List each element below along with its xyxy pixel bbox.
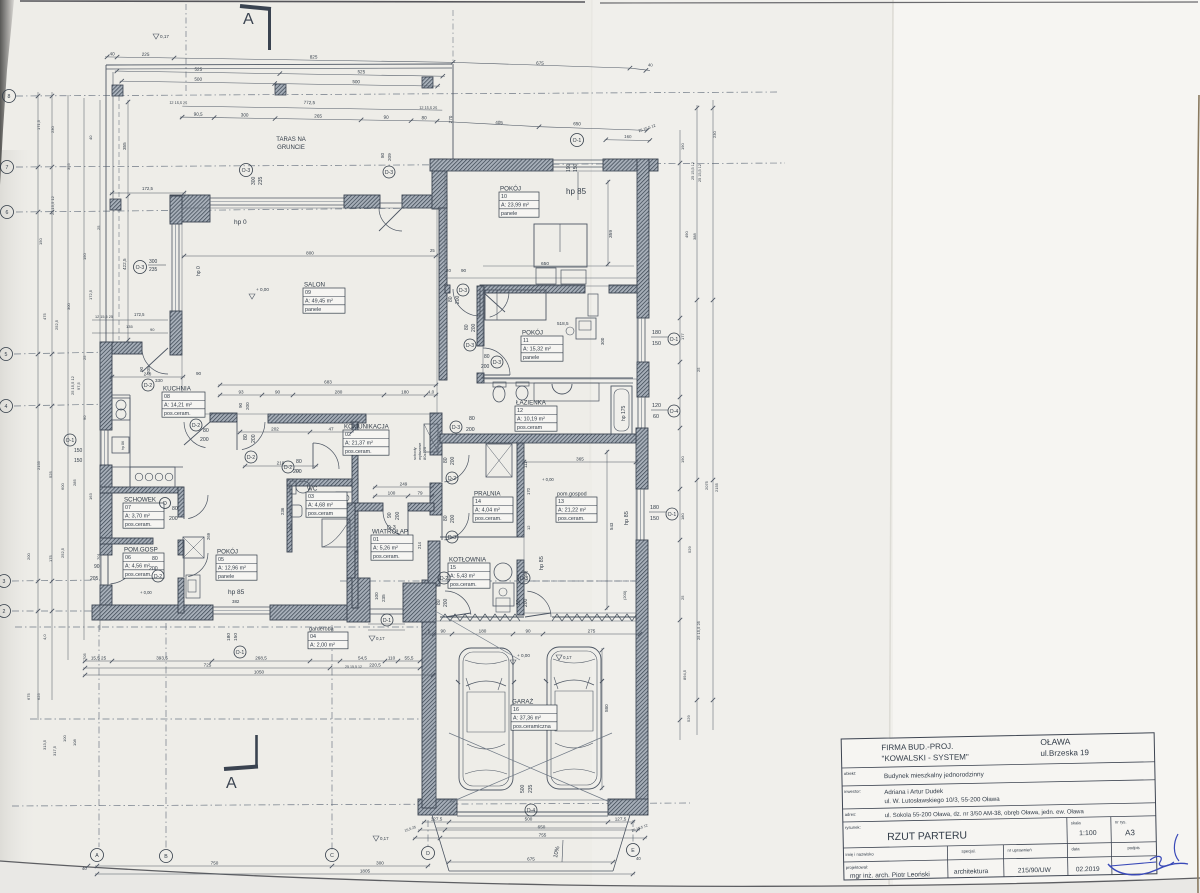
svg-text:E: E [631,848,635,854]
svg-text:podpis: podpis [1127,845,1139,850]
svg-text:190: 190 [680,143,685,150]
svg-text:KOTŁOWNIA: KOTŁOWNIA [449,557,487,564]
svg-text:800: 800 [306,250,314,255]
svg-text:220,5: 220,5 [369,662,381,667]
svg-text:pos.ceram.: pos.ceram. [450,582,477,588]
svg-text:150: 150 [74,448,83,454]
svg-text:60: 60 [653,414,659,420]
svg-text:1:100: 1:100 [1079,830,1097,837]
svg-text:135: 135 [126,324,133,329]
svg-text:265: 265 [314,114,322,119]
svg-text:200: 200 [26,553,31,560]
svg-text:A: 14,21 m²: A: 14,21 m² [164,403,192,409]
svg-text:pos.ceram.: pos.ceram. [125,572,152,578]
svg-text:A: 2,00 m²: A: 2,00 m² [310,643,335,649]
svg-text:hp 85: hp 85 [624,511,630,525]
svg-text:40: 40 [648,62,653,67]
svg-text:90: 90 [196,371,202,376]
svg-text:205: 205 [90,576,99,582]
svg-text:A: 4,04 m²: A: 4,04 m² [475,508,500,514]
svg-text:249: 249 [400,481,408,486]
svg-text:160: 160 [624,134,632,139]
svg-text:SALON: SALON [304,282,325,289]
svg-text:2: 2 [3,609,6,615]
svg-text:D-2: D-2 [192,423,200,429]
svg-text:90: 90 [150,327,155,332]
svg-text:80: 80 [436,599,442,605]
svg-text:+ 0,00: + 0,00 [140,590,152,595]
svg-text:1050: 1050 [254,669,265,674]
svg-text:580: 580 [604,704,609,712]
svg-text:200: 200 [466,427,475,433]
svg-text:200: 200 [450,456,456,465]
svg-text:12: 12 [526,525,531,530]
svg-text:209: 209 [387,153,392,161]
svg-text:200: 200 [169,516,178,522]
svg-text:2075: 2075 [704,480,709,490]
svg-text:hp 86: hp 86 [121,441,125,450]
svg-text:200: 200 [200,437,209,443]
svg-text:393,5: 393,5 [156,655,168,660]
svg-text:imię i nazwisko: imię i nazwisko [845,851,874,857]
svg-text:190: 190 [566,163,572,172]
svg-text:529: 529 [687,546,692,553]
svg-text:750: 750 [211,860,219,865]
svg-text:90: 90 [461,268,467,273]
svg-text:skala: skala [1071,820,1082,825]
svg-text:(238): (238) [523,570,528,580]
svg-text:0,17: 0,17 [563,655,572,660]
svg-text:150: 150 [573,163,579,172]
svg-text:12 15,5 25: 12 15,5 25 [95,315,113,319]
svg-text:300: 300 [149,259,158,265]
svg-text:D-4: D-4 [527,808,535,814]
svg-text:200: 200 [481,364,490,370]
svg-text:100: 100 [388,490,396,495]
svg-text:54,5: 54,5 [358,655,367,660]
svg-text:525: 525 [194,67,202,72]
svg-text:pos.ceramiczna: pos.ceramiczna [513,724,551,730]
svg-text:A3: A3 [1125,828,1136,837]
svg-text:hp 85: hp 85 [228,589,245,596]
svg-text:POKÓJ: POKÓJ [500,186,521,193]
svg-text:80: 80 [296,459,302,465]
svg-text:725: 725 [204,662,212,667]
svg-text:7: 7 [6,165,9,171]
svg-text:D-3: D-3 [459,288,467,294]
svg-text:80: 80 [152,556,158,562]
svg-text:200: 200 [450,514,456,523]
svg-text:172,5: 172,5 [88,289,93,300]
svg-text:300: 300 [241,112,249,117]
svg-text:236: 236 [280,507,285,515]
svg-text:100: 100 [62,735,67,742]
svg-text:FIRMA BUD.-PROJ.: FIRMA BUD.-PROJ. [881,742,953,752]
svg-text:4: 4 [5,404,8,410]
svg-text:data: data [1071,846,1080,851]
svg-text:A: 49,45 m²: A: 49,45 m² [305,299,333,305]
svg-text:705: 705 [82,653,87,660]
svg-text:4,0: 4,0 [428,389,435,394]
svg-text:4,0: 4,0 [42,634,47,640]
svg-text:90: 90 [94,564,100,570]
svg-text:panele: panele [523,355,539,361]
svg-text:90: 90 [387,512,393,518]
svg-text:pom.gospod: pom.gospod [557,492,587,498]
svg-text:180: 180 [680,513,685,520]
svg-text:111: 111 [523,461,528,468]
svg-text:02: 02 [345,432,351,438]
svg-text:625: 625 [36,693,41,700]
svg-text:90: 90 [525,628,531,633]
svg-text:A: A [243,11,254,28]
svg-text:235: 235 [258,176,264,185]
svg-text:6: 6 [6,210,9,216]
svg-text:0,17: 0,17 [160,34,169,39]
svg-text:panele: panele [501,211,517,217]
svg-text:O-1: O-1 [668,512,677,518]
svg-text:500: 500 [194,77,202,82]
svg-text:80x120: 80x120 [422,446,427,460]
svg-text:80: 80 [443,457,449,463]
svg-text:D: D [426,851,430,857]
svg-text:PRALNIA: PRALNIA [474,491,501,498]
svg-text:08: 08 [164,394,170,400]
svg-text:313,5: 313,5 [42,739,47,750]
svg-text:525: 525 [48,471,53,478]
svg-text:09: 09 [305,290,311,296]
svg-text:POM.GOSP: POM.GOSP [124,547,158,554]
svg-text:172,5: 172,5 [134,312,145,317]
svg-text:210: 210 [277,460,285,465]
svg-text:200: 200 [149,566,158,572]
svg-text:D-3: D-3 [452,425,460,431]
svg-text:235: 235 [528,784,534,793]
svg-text:15,5 25: 15,5 25 [91,655,107,660]
svg-text:200: 200 [251,434,257,443]
svg-text:O-3: O-3 [136,265,145,271]
svg-text:55,5: 55,5 [405,655,414,660]
svg-text:hp 85: hp 85 [539,556,545,570]
svg-text:355: 355 [122,142,127,150]
svg-text:25: 25 [430,248,435,253]
svg-text:215/90/UW: 215/90/UW [1018,867,1052,875]
svg-text:97,5: 97,5 [76,381,81,390]
svg-text:79: 79 [417,490,423,495]
svg-text:180: 180 [650,505,659,511]
svg-text:177: 177 [680,333,685,340]
svg-text:80: 80 [172,506,178,512]
svg-text:panele: panele [218,574,234,580]
svg-text:+ 0,00: + 0,00 [542,477,554,482]
svg-text:1805: 1805 [360,868,371,873]
svg-text:POKÓJ: POKÓJ [522,330,543,337]
svg-text:80: 80 [443,515,449,521]
svg-text:07: 07 [125,505,131,511]
svg-text:300: 300 [600,337,605,345]
svg-text:B: B [164,854,168,860]
svg-text:40: 40 [82,866,87,871]
svg-text:O-1: O-1 [573,138,582,144]
svg-text:108: 108 [72,739,77,746]
svg-text:25 15,5 12: 25 15,5 12 [698,164,702,182]
svg-text:12: 12 [517,408,523,414]
svg-text:90: 90 [440,628,446,633]
svg-text:pos.ceram.: pos.ceram. [164,411,191,417]
svg-text:KOMUNIKACJA: KOMUNIKACJA [344,424,390,431]
svg-text:pos.ceram: pos.ceram [308,511,334,517]
svg-text:100: 100 [374,592,379,600]
svg-text:275: 275 [588,628,596,633]
svg-text:252,5: 252,5 [54,319,59,330]
svg-text:180: 180 [401,389,409,394]
svg-text:500: 500 [520,784,526,793]
svg-text:pos.ceram.: pos.ceram. [475,516,502,522]
svg-text:269: 269 [206,532,211,540]
svg-text:14: 14 [475,499,481,505]
svg-text:O-4: O-4 [670,409,679,415]
svg-text:90: 90 [238,402,243,408]
svg-text:D-3: D-3 [385,170,393,176]
svg-text:06: 06 [125,555,131,561]
svg-text:D-1: D-1 [383,618,391,624]
svg-text:150: 150 [74,458,83,464]
svg-text:A: 37,36 m²: A: 37,36 m² [513,716,541,722]
svg-text:25: 25 [696,367,701,372]
svg-text:701: 701 [96,553,101,560]
svg-text:11: 11 [523,338,529,344]
svg-text:200: 200 [523,598,529,607]
svg-text:A: 21,22 m²: A: 21,22 m² [558,508,586,514]
svg-text:285: 285 [72,479,77,486]
svg-text:D-3: D-3 [466,343,474,349]
svg-text:150: 150 [38,238,43,245]
svg-text:nr rys.: nr rys. [1115,819,1127,824]
svg-text:40: 40 [109,51,115,56]
svg-text:01: 01 [373,537,379,543]
svg-text:214: 214 [417,541,422,549]
svg-text:20: 20 [446,268,451,273]
svg-text:WC: WC [307,486,318,493]
svg-text:525: 525 [357,69,365,74]
svg-text:O-3: O-3 [242,168,251,174]
svg-text:12: 12 [295,468,300,473]
svg-text:365: 365 [576,456,584,461]
svg-text:A: 21,37 m²: A: 21,37 m² [345,441,373,447]
svg-text:3: 3 [3,579,6,585]
svg-text:A: 4,56 m²: A: 4,56 m² [125,564,150,570]
svg-text:pos.ceram.: pos.ceram. [125,522,152,528]
svg-text:A: 15,32 m²: A: 15,32 m² [523,347,551,353]
svg-text:163: 163 [88,493,93,500]
svg-text:683: 683 [324,379,332,384]
svg-text:GRUNCIE: GRUNCIE [277,145,305,151]
svg-text:202: 202 [271,426,279,431]
svg-text:359: 359 [608,230,614,238]
svg-text:25 15,5 25: 25 15,5 25 [696,620,701,640]
svg-text:5: 5 [5,352,8,358]
svg-text:330: 330 [155,378,163,383]
svg-text:80: 80 [484,354,490,360]
svg-text:90,5: 90,5 [194,112,203,117]
svg-text:80: 80 [469,416,475,422]
svg-text:90: 90 [275,389,281,394]
svg-text:D-2: D-2 [448,476,456,482]
svg-text:A: 5,43 m²: A: 5,43 m² [450,574,475,580]
svg-text:nr uprawnień: nr uprawnień [1007,847,1032,852]
svg-text:252,5: 252,5 [60,547,65,558]
svg-text:175: 175 [48,555,53,562]
svg-text:5: 5 [428,628,431,633]
svg-text:300: 300 [66,303,71,310]
svg-text:171,5: 171,5 [36,119,41,130]
svg-text:230: 230 [712,131,717,138]
svg-text:172,5: 172,5 [142,186,154,191]
svg-text:panele: panele [305,307,321,313]
svg-text:755: 755 [539,832,547,837]
svg-text:adres:: adres: [845,812,857,817]
svg-text:180: 180 [479,628,487,633]
svg-text:80: 80 [464,324,470,330]
svg-text:150: 150 [650,516,659,522]
svg-text:O-1: O-1 [66,438,75,444]
svg-text:270: 270 [448,115,453,123]
svg-text:894,5: 894,5 [682,669,687,680]
svg-text:hp 175: hp 175 [621,405,627,421]
svg-text:hp 0: hp 0 [196,266,202,276]
svg-text:150: 150 [82,253,87,260]
svg-text:675: 675 [536,61,544,66]
svg-text:D-2: D-2 [247,455,255,461]
svg-text:D: D [163,501,167,507]
svg-text:8: 8 [8,94,11,100]
svg-text:405: 405 [495,120,503,125]
svg-text:225: 225 [142,52,150,57]
svg-text:80: 80 [448,296,454,302]
svg-text:projektował:: projektował: [846,865,868,870]
svg-text:80: 80 [243,434,249,440]
svg-text:16: 16 [513,707,519,713]
svg-text:A: 5,26 m²: A: 5,26 m² [373,546,398,552]
svg-text:Adriana i Artur Dudek: Adriana i Artur Dudek [884,788,944,796]
svg-text:675: 675 [26,693,31,700]
svg-text:03: 03 [308,494,314,500]
svg-text:C: C [330,853,334,859]
svg-text:pos.ceram.: pos.ceram. [558,516,585,522]
svg-text:A: 10,19 m²: A: 10,19 m² [517,417,545,423]
svg-text:200: 200 [455,295,461,304]
svg-text:200: 200 [443,598,449,607]
svg-text:12 15,5 25: 12 15,5 25 [169,101,187,105]
svg-text:05: 05 [218,557,224,563]
svg-text:529: 529 [686,715,691,722]
svg-text:POKÓJ: POKÓJ [217,549,238,556]
svg-text:235: 235 [381,594,386,602]
svg-text:170: 170 [526,487,531,495]
svg-text:490: 490 [684,231,689,238]
svg-text:04: 04 [310,634,316,640]
svg-text:A: 23,99 m²: A: 23,99 m² [501,203,529,209]
svg-text:93: 93 [238,389,244,394]
svg-text:475: 475 [42,313,47,320]
svg-text:25: 25 [82,355,87,360]
svg-text:80: 80 [203,428,209,434]
svg-text:90: 90 [384,115,390,120]
svg-text:rysunek:: rysunek: [845,825,861,830]
svg-text:SCHOWEK: SCHOWEK [124,497,157,504]
svg-text:382: 382 [232,599,240,604]
svg-text:110: 110 [388,655,396,660]
svg-text:500: 500 [352,79,360,84]
svg-text:D-2: D-2 [154,574,162,580]
svg-text:230: 230 [50,126,55,133]
svg-text:+ 0,00: + 0,00 [517,653,530,658]
svg-text:200: 200 [395,511,401,520]
svg-text:12 15,5 25: 12 15,5 25 [419,106,437,110]
svg-text:518,5: 518,5 [557,321,569,326]
svg-text:A: A [95,853,99,859]
svg-text:268,5: 268,5 [255,655,267,660]
svg-text:25: 25 [96,225,101,230]
svg-text:25 15,5 12: 25 15,5 12 [691,162,695,180]
svg-text:KUCHNIA: KUCHNIA [163,386,192,393]
svg-text:2155: 2155 [36,460,41,470]
svg-text:127,5: 127,5 [615,816,627,821]
svg-text:O-1: O-1 [236,650,245,656]
svg-text:317,5: 317,5 [52,745,57,756]
svg-text:180: 180 [226,633,232,641]
svg-text:120: 120 [652,403,661,409]
svg-text:300: 300 [376,860,384,865]
svg-text:280: 280 [335,389,343,394]
svg-text:pos.ceram.: pos.ceram. [373,554,400,560]
svg-text:500: 500 [525,816,533,821]
svg-text:pos.ceram.: pos.ceram. [345,449,372,455]
svg-text:15: 15 [450,565,456,571]
svg-text:300: 300 [251,176,257,185]
svg-text:architektura: architektura [954,868,989,876]
svg-text:TARAS NA: TARAS NA [276,137,306,143]
svg-text:garderoba: garderoba [309,627,334,633]
svg-text:825: 825 [310,54,318,59]
svg-text:25: 25 [680,595,685,600]
svg-text:180: 180 [652,330,661,336]
svg-text:02.2019: 02.2019 [1076,866,1100,873]
svg-text:A: 12,96 m²: A: 12,96 m² [218,566,246,572]
svg-text:D-3: D-3 [448,535,456,541]
svg-text:A: A [226,775,237,792]
svg-text:Ø16: Ø16 [289,523,293,530]
svg-text:inwestor:: inwestor: [844,789,861,794]
svg-text:"KOWALSKI - SYSTEM": "KOWALSKI - SYSTEM" [881,752,968,763]
svg-text:200: 200 [471,323,477,332]
svg-text:190: 190 [680,456,685,463]
svg-text:47: 47 [328,426,334,431]
svg-text:355: 355 [66,163,71,170]
svg-text:RZUT PARTERU: RZUT PARTERU [887,830,967,844]
svg-text:675: 675 [527,856,535,861]
svg-text:40: 40 [88,135,93,140]
svg-text:0,17: 0,17 [380,836,389,841]
svg-text:90: 90 [82,415,87,420]
svg-text:543: 543 [609,522,614,530]
svg-text:80: 80 [422,115,428,120]
svg-text:422,5: 422,5 [122,258,127,270]
svg-text:40: 40 [636,856,641,861]
svg-text:GARAŻ: GARAŻ [512,699,534,706]
svg-text:200: 200 [245,402,250,410]
svg-text:A: 3,70 m²: A: 3,70 m² [125,514,150,520]
